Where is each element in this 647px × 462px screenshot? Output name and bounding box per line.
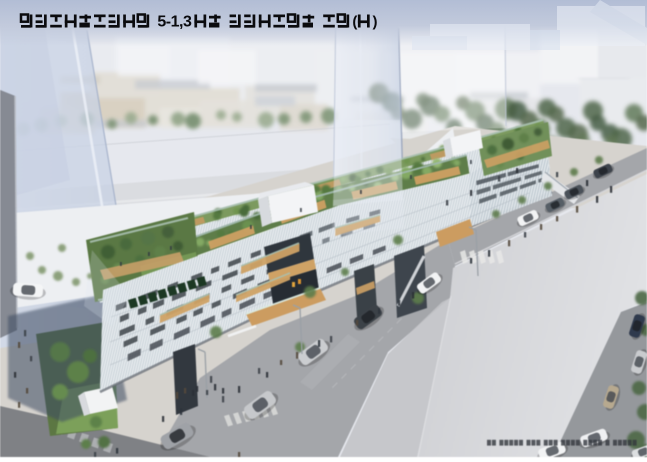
svg-text:(: (: [352, 14, 357, 31]
svg-text:): ): [373, 14, 378, 31]
svg-text:5-1,3: 5-1,3: [157, 14, 192, 31]
